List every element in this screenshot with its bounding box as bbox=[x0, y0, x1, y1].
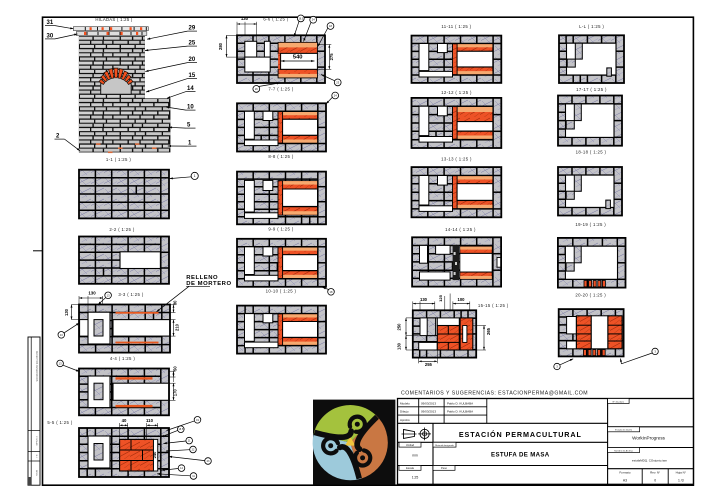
svg-text:130: 130 bbox=[241, 16, 249, 21]
svg-text:Modelo: Modelo bbox=[400, 401, 410, 405]
svg-text:15-15 ( 1:25 ): 15-15 ( 1:25 ) bbox=[478, 303, 509, 308]
svg-text:19-19 ( 1:25 ): 19-19 ( 1:25 ) bbox=[575, 222, 606, 227]
svg-text:Estado de diseño: Estado de diseño bbox=[615, 429, 633, 432]
svg-text:Rev. N°: Rev. N° bbox=[650, 470, 661, 474]
svg-text:15: 15 bbox=[189, 73, 196, 79]
svg-text:Nombre de Archivo: Nombre de Archivo bbox=[614, 449, 633, 452]
svg-text:HILADAS ( 1:25 ): HILADAS ( 1:25 ) bbox=[95, 17, 133, 22]
svg-text:0: 0 bbox=[654, 479, 656, 483]
svg-text:265: 265 bbox=[486, 327, 491, 335]
svg-text:Peso: Peso bbox=[441, 466, 447, 470]
svg-text:25: 25 bbox=[189, 41, 196, 47]
svg-text:5-5 ( 1:25 ): 5-5 ( 1:25 ) bbox=[47, 420, 72, 425]
svg-text:09/03/2013: 09/03/2013 bbox=[421, 401, 436, 405]
svg-text:18,5: 18,5 bbox=[298, 17, 303, 20]
svg-text:50: 50 bbox=[173, 366, 178, 371]
svg-text:20: 20 bbox=[189, 57, 196, 63]
svg-text:10-10 ( 1:25 ): 10-10 ( 1:25 ) bbox=[266, 288, 297, 293]
svg-text:estufaMDQ. COnjunto.iam: estufaMDQ. COnjunto.iam bbox=[632, 458, 668, 462]
svg-text:9-9 ( 1:25 ): 9-9 ( 1:25 ) bbox=[268, 226, 293, 231]
svg-text:REV.N: REV.N bbox=[35, 470, 37, 476]
svg-text:8-8 ( 1:25 ): 8-8 ( 1:25 ) bbox=[268, 154, 293, 159]
svg-text:125: 125 bbox=[438, 294, 443, 301]
svg-text:N° de plano: N° de plano bbox=[613, 401, 625, 403]
svg-text:31: 31 bbox=[47, 20, 54, 26]
svg-text:10: 10 bbox=[187, 105, 194, 111]
svg-text:275: 275 bbox=[329, 53, 334, 61]
svg-text:6-6 ( 1:25 ): 6-6 ( 1:25 ) bbox=[263, 17, 288, 22]
svg-text:14: 14 bbox=[187, 86, 194, 92]
svg-text:30: 30 bbox=[173, 300, 178, 305]
svg-text:Pablo D. KULBABA: Pablo D. KULBABA bbox=[447, 410, 473, 414]
svg-text:ESTACIÓN PERMACULTURAL: ESTACIÓN PERMACULTURAL bbox=[459, 430, 582, 439]
svg-text:240: 240 bbox=[152, 451, 157, 458]
svg-text:130: 130 bbox=[88, 291, 96, 296]
svg-text:WorkInProgress: WorkInProgress bbox=[632, 436, 666, 441]
svg-text:2-2 ( 1:25 ): 2-2 ( 1:25 ) bbox=[109, 227, 134, 232]
svg-text:130: 130 bbox=[64, 308, 69, 316]
svg-text:7-7 ( 1:25 ): 7-7 ( 1:25 ) bbox=[268, 87, 293, 92]
svg-text:Hoja N°: Hoja N° bbox=[676, 470, 687, 474]
svg-text:L-L ( 1:25 ): L-L ( 1:25 ) bbox=[579, 24, 604, 29]
svg-text:280: 280 bbox=[218, 42, 223, 50]
svg-text:17-17 ( 1:25 ): 17-17 ( 1:25 ) bbox=[576, 87, 607, 92]
svg-text:130: 130 bbox=[420, 297, 428, 302]
svg-text:mm: mm bbox=[412, 453, 418, 457]
svg-text:11-11 ( 1:25 ): 11-11 ( 1:25 ) bbox=[441, 24, 471, 29]
svg-text:40: 40 bbox=[122, 418, 127, 423]
svg-text:DERECHOS RESERVADOS: DERECHOS RESERVADOS bbox=[35, 351, 38, 382]
svg-text:Unidad: Unidad bbox=[406, 443, 415, 447]
svg-text:14-14 ( 1:25 ): 14-14 ( 1:25 ) bbox=[445, 227, 476, 232]
svg-text:18-18 ( 1:25 ): 18-18 ( 1:25 ) bbox=[576, 149, 607, 154]
svg-text:Material designado: Material designado bbox=[435, 444, 454, 447]
svg-text:09/03/2013: 09/03/2013 bbox=[421, 410, 436, 414]
svg-text:255: 255 bbox=[425, 362, 433, 367]
svg-text:Escala: Escala bbox=[406, 466, 414, 470]
svg-text:210: 210 bbox=[175, 323, 180, 331]
svg-text:ESTUFA DE MASA: ESTUFA DE MASA bbox=[491, 452, 550, 459]
svg-text:20-20 ( 1:25 ): 20-20 ( 1:25 ) bbox=[575, 293, 606, 298]
svg-text:30: 30 bbox=[47, 33, 54, 39]
svg-text:4-4 ( 1:25 ): 4-4 ( 1:25 ) bbox=[110, 356, 135, 361]
svg-text:1-1 ( 1:25 ): 1-1 ( 1:25 ) bbox=[106, 157, 131, 162]
svg-text:1:25: 1:25 bbox=[412, 475, 419, 479]
svg-text:1: 1 bbox=[194, 174, 196, 178]
svg-text:F.SOLAR: F.SOLAR bbox=[35, 436, 38, 446]
svg-text:100: 100 bbox=[458, 297, 466, 302]
svg-text:540: 540 bbox=[293, 54, 303, 60]
svg-text:Dibujo: Dibujo bbox=[400, 410, 409, 414]
svg-text:Aprobó: Aprobó bbox=[400, 418, 410, 422]
svg-text:COMENTARIOS Y SUGERENCIAS: EST: COMENTARIOS Y SUGERENCIAS: ESTACIONPERMA… bbox=[401, 391, 588, 397]
svg-text:3-3 ( 1:25 ): 3-3 ( 1:25 ) bbox=[118, 292, 143, 297]
svg-text:250: 250 bbox=[396, 323, 401, 331]
svg-text:170: 170 bbox=[172, 389, 177, 397]
svg-text:A3: A3 bbox=[623, 479, 627, 483]
svg-text:29: 29 bbox=[189, 26, 196, 32]
svg-text:18,5: 18,5 bbox=[178, 428, 183, 431]
svg-text:130: 130 bbox=[396, 342, 401, 350]
svg-text:1 /3: 1 /3 bbox=[678, 479, 684, 483]
svg-text:13-13 ( 1:25 ): 13-13 ( 1:25 ) bbox=[441, 157, 472, 162]
svg-text:12-12 ( 1:25 ): 12-12 ( 1:25 ) bbox=[441, 90, 472, 95]
svg-text:Formato: Formato bbox=[619, 470, 631, 474]
svg-text:110: 110 bbox=[146, 418, 154, 423]
svg-text:Pablo D. KULBABA: Pablo D. KULBABA bbox=[447, 401, 473, 405]
